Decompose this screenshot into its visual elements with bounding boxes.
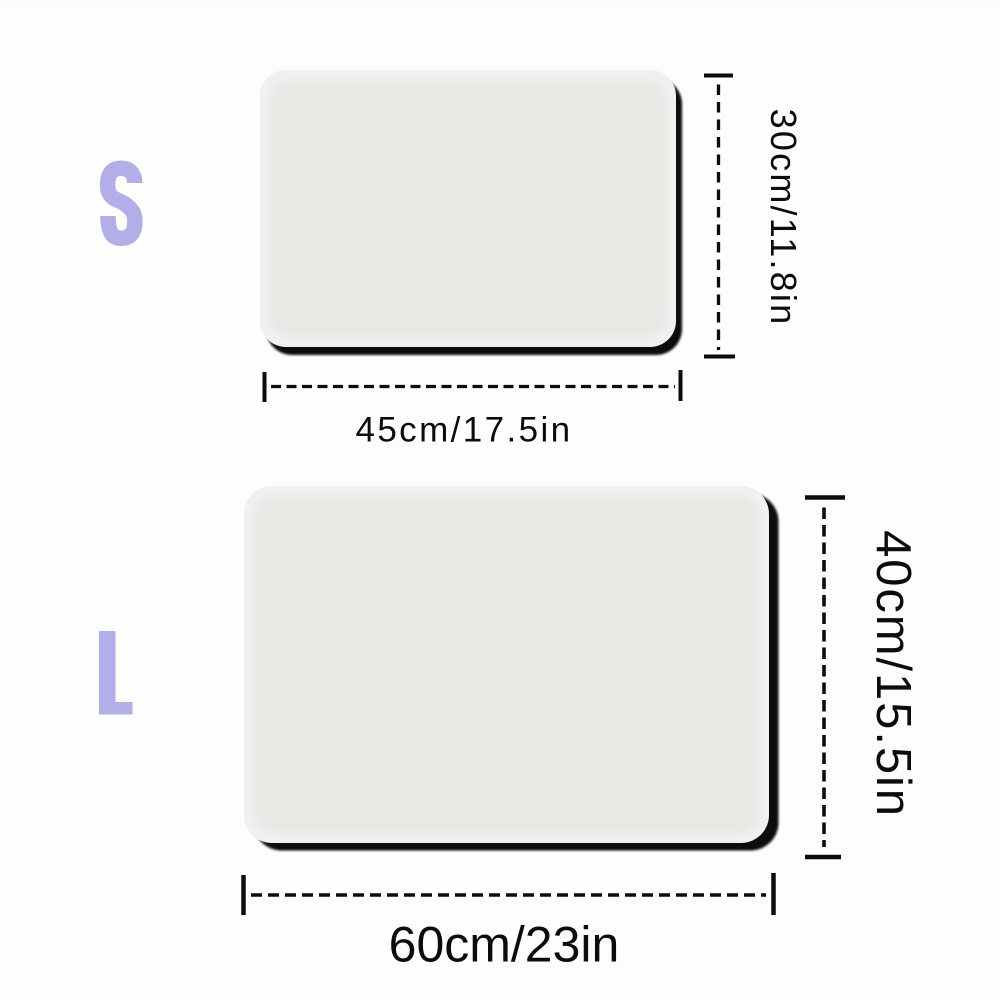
svg-text:45cm/17.5in: 45cm/17.5in <box>355 411 572 450</box>
svg-text:60cm/23in: 60cm/23in <box>389 917 620 973</box>
svg-text:30cm/11.8in: 30cm/11.8in <box>763 109 804 327</box>
svg-text:40cm/15.5in: 40cm/15.5in <box>866 530 920 818</box>
